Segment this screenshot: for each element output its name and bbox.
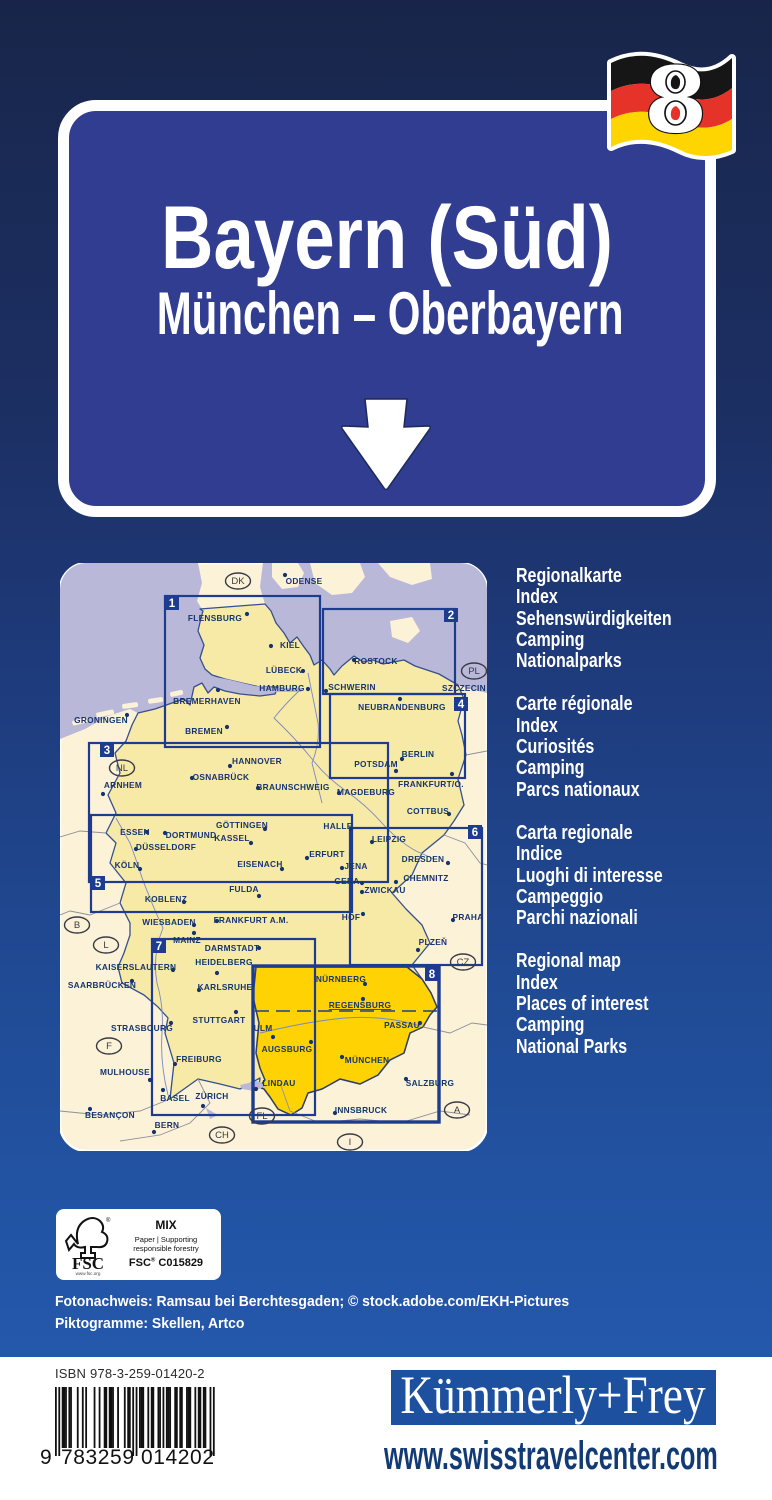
svg-text:BASEL: BASEL [160, 1093, 190, 1103]
svg-text:1: 1 [169, 598, 176, 610]
svg-text:MAINZ: MAINZ [173, 935, 201, 945]
svg-text:KOBLENZ: KOBLENZ [145, 894, 187, 904]
svg-text:ROSTOCK: ROSTOCK [354, 656, 397, 666]
svg-text:GÖTTINGEN: GÖTTINGEN [216, 820, 268, 830]
svg-text:BREMERHAVEN: BREMERHAVEN [173, 696, 241, 706]
svg-text:3: 3 [104, 745, 110, 757]
svg-text:2: 2 [448, 610, 454, 622]
svg-text:9: 9 [40, 1446, 52, 1467]
svg-text:STRASBOURG: STRASBOURG [111, 1023, 173, 1033]
svg-text:WIESBADEN: WIESBADEN [142, 917, 195, 927]
svg-text:BRAUNSCHWEIG: BRAUNSCHWEIG [256, 782, 329, 792]
svg-text:HAMBURG: HAMBURG [259, 683, 304, 693]
svg-text:ZWICKAU: ZWICKAU [364, 885, 405, 895]
svg-text:MULHOUSE: MULHOUSE [100, 1067, 150, 1077]
svg-text:ULM: ULM [254, 1023, 273, 1033]
svg-text:ARNHEM: ARNHEM [104, 780, 142, 790]
svg-text:CZ: CZ [457, 957, 470, 968]
svg-text:KÖLN: KÖLN [115, 860, 140, 870]
svg-text:KARLSRUHE: KARLSRUHE [198, 982, 253, 992]
svg-text:014202: 014202 [141, 1446, 214, 1467]
svg-text:SALZBURG: SALZBURG [406, 1078, 455, 1088]
svg-text:FREIBURG: FREIBURG [176, 1054, 222, 1064]
svg-text:DÜSSELDORF: DÜSSELDORF [136, 842, 196, 852]
svg-text:HEIDELBERG: HEIDELBERG [195, 957, 252, 967]
svg-text:MAGDEBURG: MAGDEBURG [337, 787, 395, 797]
svg-text:5: 5 [95, 878, 102, 890]
svg-text:AUGSBURG: AUGSBURG [262, 1044, 313, 1054]
svg-text:DK: DK [231, 576, 245, 587]
svg-text:8: 8 [429, 969, 436, 981]
svg-text:MÜNCHEN: MÜNCHEN [345, 1055, 390, 1065]
svg-text:F: F [106, 1041, 112, 1052]
svg-text:SAARBRÜCKEN: SAARBRÜCKEN [68, 980, 136, 990]
svg-text:ODENSE: ODENSE [286, 576, 323, 586]
svg-text:ZÜRICH: ZÜRICH [195, 1091, 228, 1101]
svg-text:PASSAU: PASSAU [384, 1020, 420, 1030]
svg-text:A: A [454, 1105, 461, 1116]
svg-text:6: 6 [472, 827, 478, 839]
svg-text:®: ® [106, 1217, 111, 1224]
svg-text:FRANKFURT A.M.: FRANKFURT A.M. [214, 915, 289, 925]
svg-text:CHEMNITZ: CHEMNITZ [403, 873, 448, 883]
svg-text:BESANÇON: BESANÇON [85, 1110, 135, 1120]
svg-text:FULDA: FULDA [229, 884, 259, 894]
svg-text:DARMSTADT: DARMSTADT [205, 943, 260, 953]
svg-text:BERN: BERN [155, 1120, 180, 1130]
svg-text:POTSDAM: POTSDAM [354, 759, 398, 769]
svg-text:COTTBUS: COTTBUS [407, 806, 449, 816]
svg-text:7: 7 [156, 941, 162, 953]
svg-text:NL: NL [116, 763, 128, 774]
svg-text:DORTMUND: DORTMUND [166, 830, 217, 840]
svg-text:FLENSBURG: FLENSBURG [188, 613, 242, 623]
svg-text:DRESDEN: DRESDEN [402, 854, 445, 864]
svg-text:JENA: JENA [344, 861, 367, 871]
svg-text:INNSBRUCK: INNSBRUCK [335, 1105, 387, 1115]
svg-text:8: 8 [646, 44, 705, 152]
svg-text:BERLIN: BERLIN [402, 749, 435, 759]
svg-text:KAISERSLAUTERN: KAISERSLAUTERN [96, 962, 177, 972]
svg-text:PLZEŇ: PLZEŇ [419, 936, 448, 947]
svg-text:FRANKFURT/O.: FRANKFURT/O. [398, 779, 464, 789]
svg-text:EISENACH: EISENACH [237, 859, 282, 869]
svg-text:NÜRNBERG: NÜRNBERG [316, 974, 366, 984]
svg-text:4: 4 [458, 699, 465, 711]
svg-text:OSNABRÜCK: OSNABRÜCK [193, 772, 250, 782]
svg-text:I: I [349, 1137, 352, 1148]
svg-text:CH: CH [215, 1130, 229, 1141]
svg-text:FL: FL [256, 1111, 267, 1122]
svg-text:L: L [103, 940, 108, 951]
svg-text:783259: 783259 [61, 1446, 134, 1467]
svg-text:KIEL: KIEL [280, 640, 300, 650]
svg-text:GERA: GERA [334, 876, 359, 886]
svg-text:HALLE: HALLE [323, 821, 352, 831]
svg-text:B: B [74, 920, 80, 931]
svg-text:LINDAU: LINDAU [262, 1078, 295, 1088]
svg-text:ERFURT: ERFURT [309, 849, 344, 859]
svg-text:PL: PL [468, 666, 480, 677]
svg-text:KASSEL: KASSEL [214, 833, 249, 843]
svg-text:HANNOVER: HANNOVER [232, 756, 282, 766]
svg-text:SZCZECIN: SZCZECIN [442, 683, 486, 693]
svg-text:HOF: HOF [342, 912, 360, 922]
svg-text:GRONINGEN: GRONINGEN [74, 715, 128, 725]
svg-text:STUTTGART: STUTTGART [193, 1015, 246, 1025]
svg-text:REGENSBURG: REGENSBURG [329, 1000, 391, 1010]
svg-text:NEUBRANDENBURG: NEUBRANDENBURG [358, 702, 446, 712]
svg-text:www.fsc.org: www.fsc.org [76, 1271, 101, 1276]
svg-text:LEIPZIG: LEIPZIG [372, 834, 406, 844]
svg-text:BREMEN: BREMEN [185, 726, 223, 736]
svg-text:SCHWERIN: SCHWERIN [328, 682, 376, 692]
svg-text:LÜBECK: LÜBECK [266, 665, 302, 675]
svg-text:PRAHA: PRAHA [452, 912, 483, 922]
